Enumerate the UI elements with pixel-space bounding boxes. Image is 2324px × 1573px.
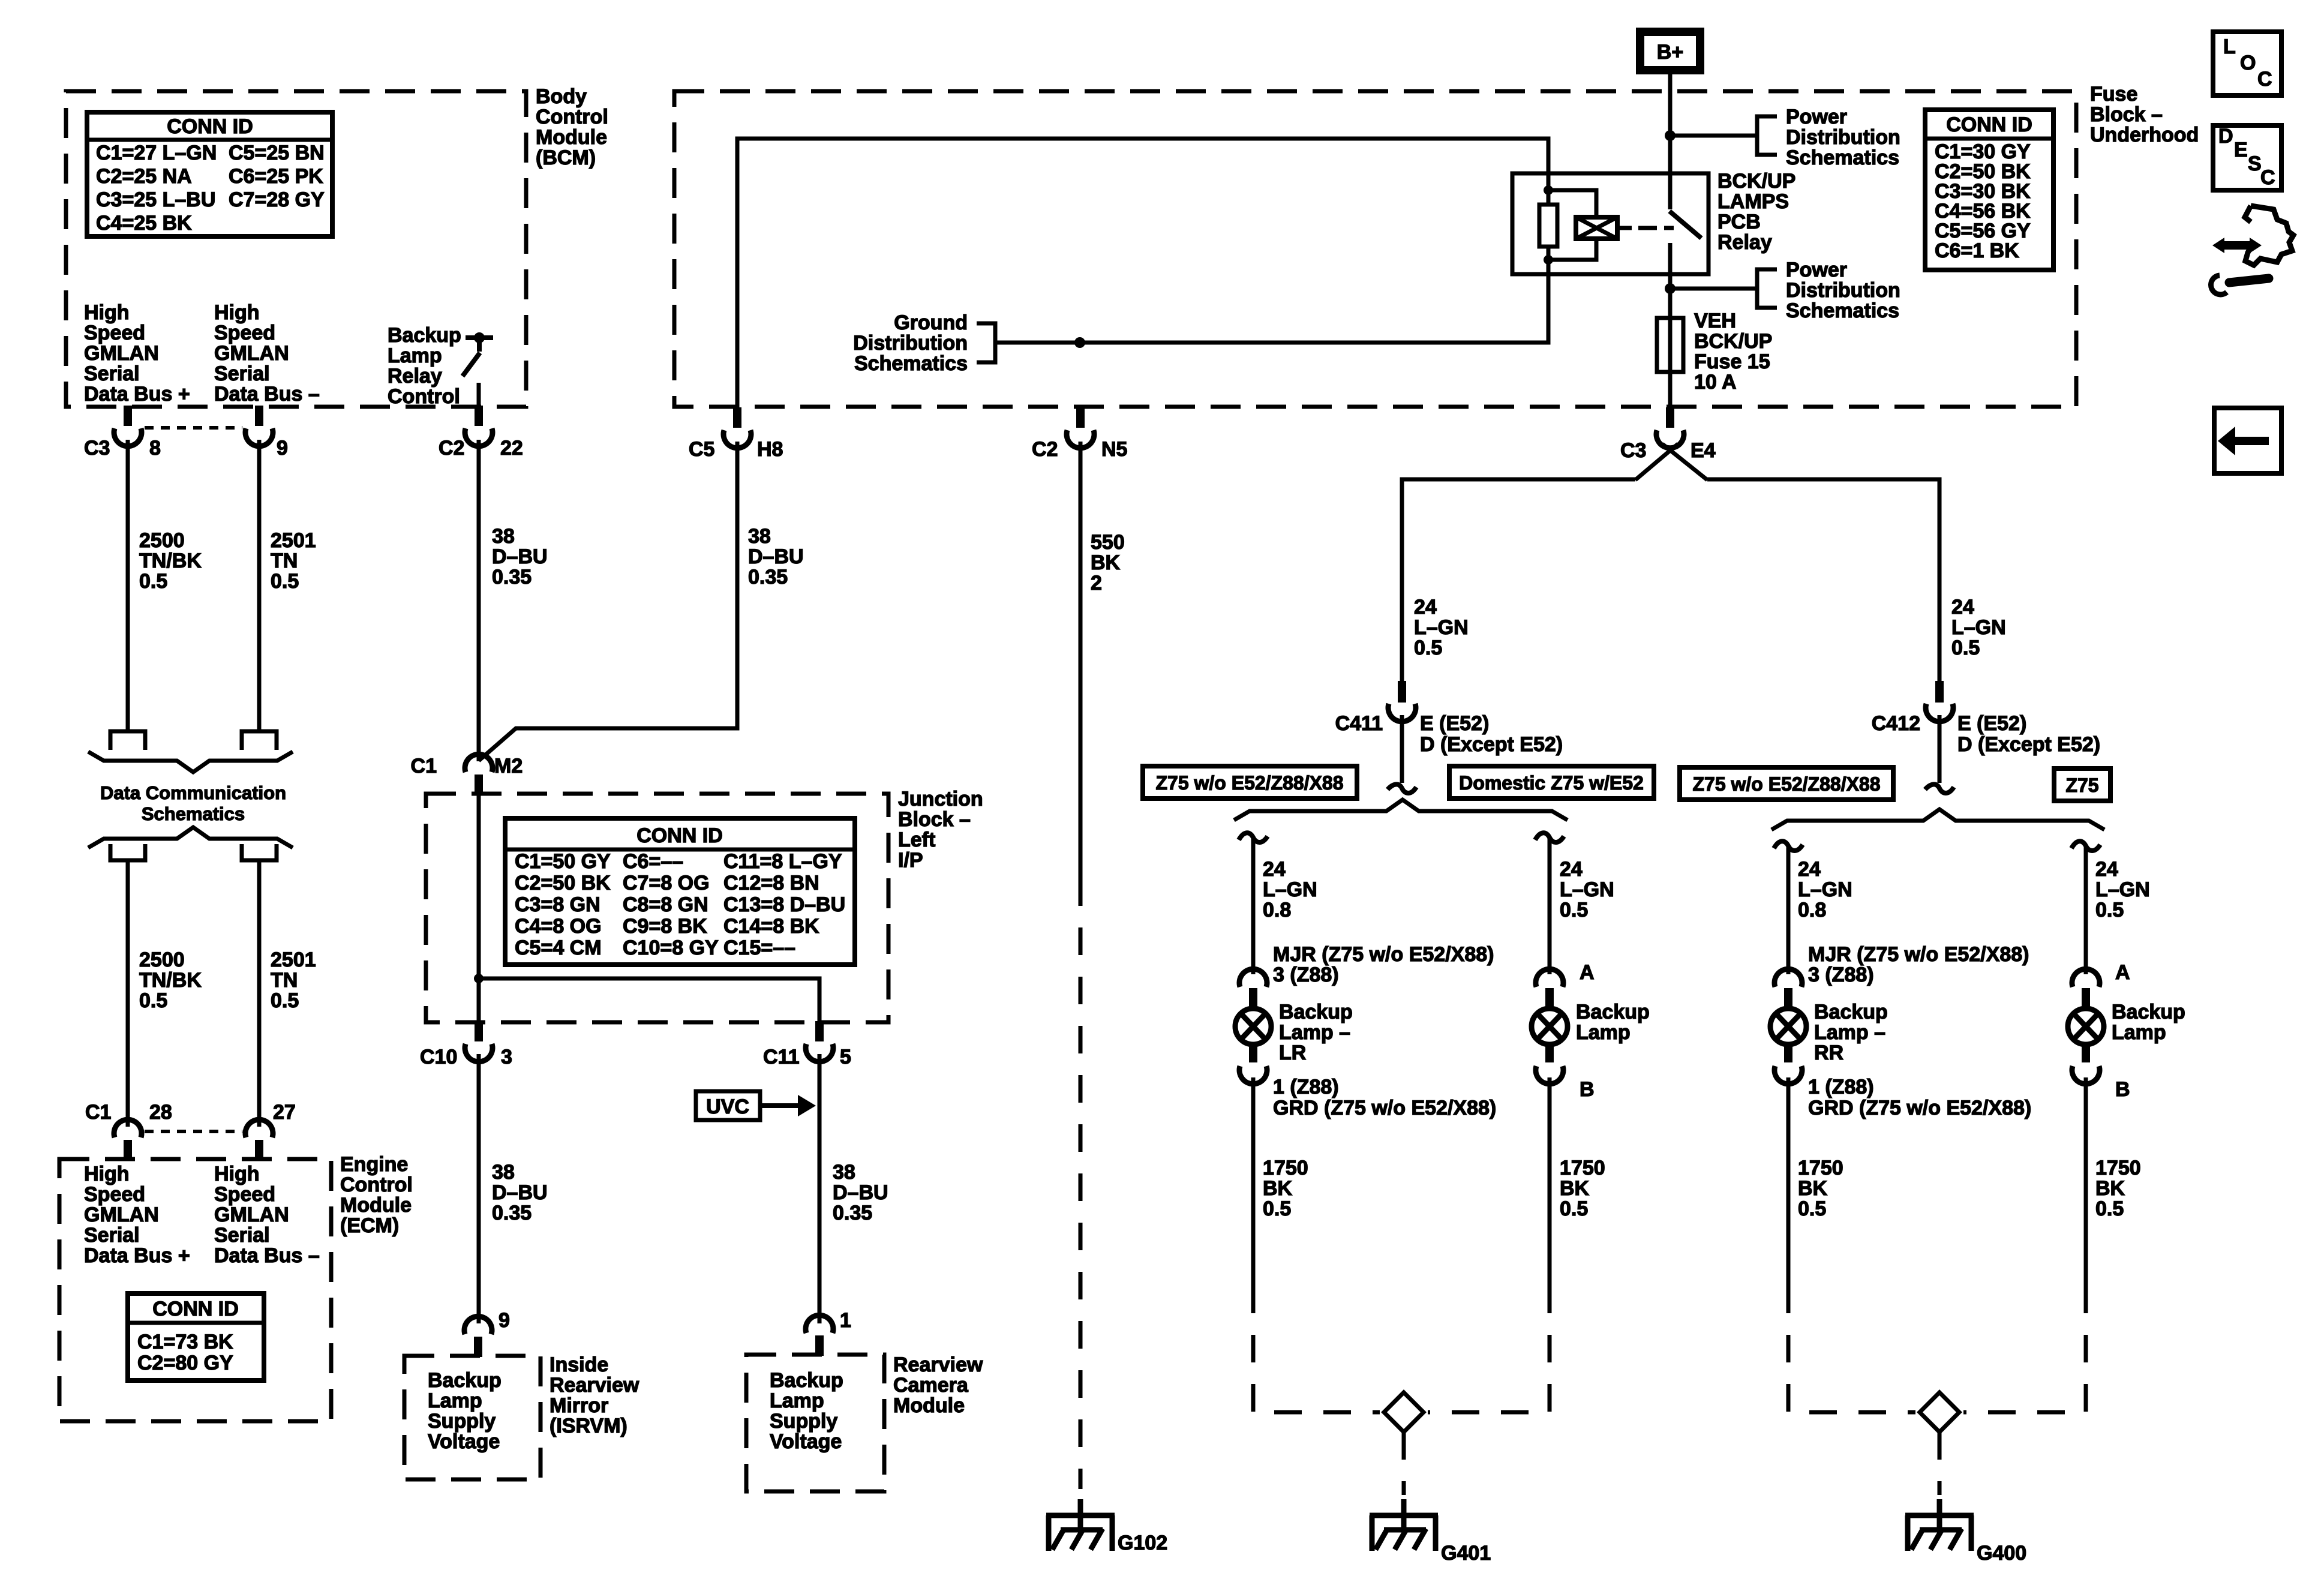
svg-text:Lamp: Lamp [770,1389,824,1412]
svg-text:MJR (Z75 w/o E52/X88): MJR (Z75 w/o E52/X88) [1273,943,1494,966]
svg-text:C11=8 L–GY: C11=8 L–GY [723,850,842,873]
svg-text:Rearview: Rearview [893,1353,983,1376]
svg-text:C7=8 OG: C7=8 OG [623,872,710,894]
svg-text:2501: 2501 [271,948,316,971]
svg-text:E4: E4 [1691,439,1716,462]
svg-text:0.5: 0.5 [139,989,167,1012]
svg-text:H8: H8 [757,438,783,461]
svg-text:C: C [2257,68,2272,91]
svg-text:L–GN: L–GN [1798,878,1852,901]
svg-text:Data Bus +: Data Bus + [84,383,190,406]
svg-text:GRD (Z75 w/o E52/X88): GRD (Z75 w/o E52/X88) [1273,1097,1496,1119]
svg-text:Power: Power [1786,259,1847,281]
svg-text:L–GN: L–GN [2095,878,2150,901]
svg-text:D (Except E52): D (Except E52) [1420,733,1563,756]
svg-text:G102: G102 [1118,1532,1167,1554]
svg-text:Ground: Ground [894,311,968,334]
svg-text:24: 24 [2095,858,2118,881]
svg-text:22: 22 [500,437,523,460]
svg-text:38: 38 [748,525,771,548]
svg-text:B: B [2115,1078,2130,1101]
svg-text:Module: Module [893,1394,965,1417]
svg-text:Lamp: Lamp [1576,1021,1631,1044]
svg-text:Schematics: Schematics [1786,299,1899,322]
svg-text:Block –: Block – [2090,103,2163,126]
svg-text:L–GN: L–GN [1560,878,1614,901]
svg-text:0.35: 0.35 [748,566,788,589]
svg-text:Backup: Backup [1576,1001,1650,1023]
svg-text:9: 9 [499,1309,510,1332]
svg-text:C9=8 BK: C9=8 BK [623,915,707,938]
svg-text:CONN ID: CONN ID [1946,113,2032,136]
svg-text:Distribution: Distribution [1786,279,1900,302]
svg-text:0.35: 0.35 [833,1202,872,1224]
svg-text:E (E52): E (E52) [1957,712,2026,735]
svg-text:C15=––: C15=–– [723,936,795,959]
svg-text:G400: G400 [1977,1542,2026,1565]
svg-text:0.5: 0.5 [271,989,299,1012]
svg-text:BCK/UP: BCK/UP [1718,170,1795,193]
svg-text:38: 38 [492,525,515,548]
svg-text:24: 24 [1798,858,1821,881]
svg-text:0.5: 0.5 [139,570,167,593]
svg-text:Lamp –: Lamp – [1279,1021,1350,1044]
svg-text:C11: C11 [763,1046,800,1068]
svg-text:Distribution: Distribution [1786,126,1900,149]
svg-text:0.5: 0.5 [1951,637,1980,659]
svg-text:S: S [2248,152,2262,175]
svg-text:UVC: UVC [706,1095,749,1118]
svg-text:C1=27 L–GN: C1=27 L–GN [96,142,217,164]
svg-text:0.5: 0.5 [271,570,299,593]
svg-text:PCB: PCB [1718,211,1761,233]
svg-text:C12=8 BN: C12=8 BN [723,872,819,894]
svg-text:C: C [2260,166,2275,189]
svg-text:Module: Module [340,1194,412,1217]
svg-text:L–GN: L–GN [1951,616,2006,639]
svg-text:BK: BK [1263,1177,1293,1200]
svg-text:0.5: 0.5 [1560,1197,1588,1220]
svg-text:Speed: Speed [214,1183,275,1206]
svg-text:BCK/UP: BCK/UP [1694,330,1772,353]
svg-text:8: 8 [149,437,161,460]
svg-text:D–BU: D–BU [833,1181,888,1204]
svg-text:L–GN: L–GN [1414,616,1469,639]
svg-text:VEH: VEH [1694,310,1736,332]
svg-text:C13=8 D–BU: C13=8 D–BU [723,893,845,916]
svg-text:3 (Z88): 3 (Z88) [1273,963,1339,986]
svg-text:C14=8 BK: C14=8 BK [723,915,819,938]
svg-text:0.35: 0.35 [492,566,532,589]
svg-text:0.5: 0.5 [1263,1197,1291,1220]
svg-text:10 A: 10 A [1694,371,1737,394]
svg-text:CONN ID: CONN ID [152,1298,239,1320]
svg-text:Lamp: Lamp [2112,1021,2166,1044]
svg-text:Supply: Supply [770,1410,837,1433]
svg-text:D–BU: D–BU [492,545,548,568]
svg-text:Data Bus +: Data Bus + [84,1244,190,1267]
svg-text:C3: C3 [1620,439,1646,462]
svg-text:Z75: Z75 [2065,775,2098,796]
svg-text:C10=8 GY: C10=8 GY [623,936,719,959]
svg-text:C10: C10 [420,1046,457,1068]
svg-text:Backup: Backup [2112,1001,2185,1023]
svg-text:Z75 w/o E52/Z88/X88: Z75 w/o E52/Z88/X88 [1692,773,1880,795]
svg-text:C6=––: C6=–– [623,850,683,873]
svg-text:5: 5 [840,1046,851,1068]
svg-text:C2=25 NA: C2=25 NA [96,165,192,188]
svg-text:Engine: Engine [340,1153,408,1176]
svg-text:C3=8 GN: C3=8 GN [515,893,600,916]
svg-text:Serial: Serial [84,1224,140,1247]
svg-text:C3=25 L–BU: C3=25 L–BU [96,188,215,211]
svg-text:B+: B+ [1657,41,1683,64]
svg-text:D: D [2218,125,2233,148]
svg-text:GMLAN: GMLAN [214,342,289,365]
svg-text:I/P: I/P [898,849,923,872]
svg-text:High: High [214,301,260,324]
svg-text:Backup: Backup [1279,1001,1353,1023]
svg-text:CONN ID: CONN ID [636,824,723,847]
svg-text:C6=25 PK: C6=25 PK [229,165,323,188]
svg-text:Block –: Block – [898,808,971,831]
svg-text:0.5: 0.5 [2095,1197,2124,1220]
svg-text:BK: BK [1798,1177,1828,1200]
svg-text:C2=50 BK: C2=50 BK [515,872,611,894]
svg-text:0.5: 0.5 [1560,899,1588,921]
svg-text:1750: 1750 [1263,1157,1308,1179]
svg-text:9: 9 [277,437,288,460]
svg-text:TN: TN [271,969,298,992]
svg-text:Backup: Backup [770,1369,843,1392]
svg-text:24: 24 [1560,858,1583,881]
svg-text:Voltage: Voltage [428,1430,500,1453]
svg-text:G401: G401 [1441,1542,1491,1565]
svg-text:M2: M2 [494,755,523,778]
svg-text:Fuse 15: Fuse 15 [1694,350,1770,373]
svg-text:(ECM): (ECM) [340,1214,399,1237]
svg-text:0.8: 0.8 [1798,899,1826,921]
svg-text:1 (Z88): 1 (Z88) [1273,1076,1339,1098]
svg-text:C3: C3 [84,437,110,460]
svg-text:C4=25 BK: C4=25 BK [96,212,192,235]
svg-text:CONN ID: CONN ID [167,115,253,138]
svg-text:GMLAN: GMLAN [84,1203,159,1226]
svg-text:C1=73 BK: C1=73 BK [137,1331,233,1353]
svg-text:Mirror: Mirror [550,1394,608,1417]
svg-text:High: High [214,1163,260,1185]
svg-text:2: 2 [1091,572,1102,595]
svg-text:Serial: Serial [214,362,270,385]
svg-text:Domestic Z75 w/E52: Domestic Z75 w/E52 [1459,772,1644,794]
svg-text:BK: BK [2095,1177,2125,1200]
svg-text:C5=4 CM: C5=4 CM [515,936,602,959]
svg-text:C411: C411 [1335,712,1383,735]
svg-text:Speed: Speed [84,322,145,344]
svg-text:MJR (Z75 w/o E52/X88): MJR (Z75 w/o E52/X88) [1808,943,2029,966]
svg-text:TN/BK: TN/BK [139,969,202,992]
svg-text:24: 24 [1414,596,1437,619]
svg-text:Backup: Backup [388,324,461,347]
svg-text:C8=8 GN: C8=8 GN [623,893,708,916]
svg-text:Body: Body [536,85,587,108]
svg-text:C1: C1 [411,755,437,778]
svg-text:Rearview: Rearview [550,1374,639,1397]
svg-text:0.35: 0.35 [492,1202,532,1224]
svg-text:RR: RR [1814,1041,1843,1064]
svg-text:Data Bus –: Data Bus – [214,383,320,406]
svg-text:24: 24 [1951,596,1974,619]
svg-text:Data Bus –: Data Bus – [214,1244,320,1267]
svg-text:1750: 1750 [1560,1157,1605,1179]
svg-text:Serial: Serial [214,1224,270,1247]
svg-text:2500: 2500 [139,529,185,552]
svg-text:BK: BK [1560,1177,1590,1200]
svg-text:E: E [2234,139,2248,161]
svg-text:Voltage: Voltage [770,1430,842,1453]
svg-text:Junction: Junction [898,788,983,810]
svg-text:C1: C1 [85,1101,111,1124]
svg-text:Fuse: Fuse [2090,83,2137,106]
svg-text:Speed: Speed [84,1183,145,1206]
svg-text:Schematics: Schematics [1786,146,1899,169]
svg-text:A: A [1580,961,1595,984]
svg-text:D (Except E52): D (Except E52) [1957,733,2100,756]
svg-text:D–BU: D–BU [492,1181,548,1204]
svg-text:GMLAN: GMLAN [84,342,159,365]
svg-text:Module: Module [536,126,607,149]
svg-text:GMLAN: GMLAN [214,1203,289,1226]
svg-text:C5=25 BN: C5=25 BN [229,142,325,164]
svg-text:L: L [2223,35,2236,58]
svg-text:Backup: Backup [428,1369,502,1392]
svg-text:Supply: Supply [428,1410,496,1433]
svg-text:C2: C2 [439,437,464,460]
svg-text:BK: BK [1091,551,1121,574]
svg-text:Speed: Speed [214,322,275,344]
svg-text:GRD (Z75 w/o E52/X88): GRD (Z75 w/o E52/X88) [1808,1097,2031,1119]
svg-text:0.5: 0.5 [2095,899,2124,921]
svg-text:3 (Z88): 3 (Z88) [1808,963,1874,986]
svg-text:C7=28 GY: C7=28 GY [229,188,325,211]
svg-text:1750: 1750 [2095,1157,2141,1179]
svg-text:Power: Power [1786,106,1847,128]
svg-text:C4=8 OG: C4=8 OG [515,915,602,938]
svg-text:Camera: Camera [893,1374,969,1397]
svg-text:38: 38 [492,1161,515,1184]
svg-text:N5: N5 [1101,438,1127,461]
svg-text:Underhood: Underhood [2090,124,2199,146]
svg-text:550: 550 [1091,531,1125,554]
svg-text:LAMPS: LAMPS [1718,190,1789,213]
svg-text:Control: Control [340,1173,413,1196]
svg-text:(ISRVM): (ISRVM) [550,1415,627,1437]
svg-text:Inside: Inside [550,1353,608,1376]
svg-text:Schematics: Schematics [854,352,968,375]
svg-text:(BCM): (BCM) [536,146,596,169]
svg-text:3: 3 [501,1046,512,1068]
svg-text:27: 27 [273,1101,296,1124]
svg-text:Z75 w/o E52/Z88/X88: Z75 w/o E52/Z88/X88 [1155,772,1343,794]
svg-text:Control: Control [388,385,460,408]
svg-text:Left: Left [898,828,935,851]
svg-text:D–BU: D–BU [748,545,804,568]
svg-text:High: High [84,301,130,324]
svg-text:38: 38 [833,1161,855,1184]
svg-text:2500: 2500 [139,948,185,971]
svg-text:TN: TN [271,550,298,572]
svg-text:C1=50 GY: C1=50 GY [515,850,611,873]
svg-text:Relay: Relay [1718,231,1772,254]
svg-text:Serial: Serial [84,362,140,385]
svg-text:1: 1 [840,1309,851,1332]
svg-text:B: B [1580,1078,1595,1101]
svg-text:24: 24 [1263,858,1286,881]
svg-text:Distribution: Distribution [853,332,968,355]
svg-text:LR: LR [1279,1041,1306,1064]
svg-text:0.5: 0.5 [1798,1197,1826,1220]
svg-text:TN/BK: TN/BK [139,550,202,572]
svg-text:Control: Control [536,106,608,128]
svg-text:28: 28 [149,1101,172,1124]
svg-text:2501: 2501 [271,529,316,552]
svg-text:1 (Z88): 1 (Z88) [1808,1076,1874,1098]
svg-text:Lamp –: Lamp – [1814,1021,1885,1044]
svg-text:Lamp: Lamp [428,1389,482,1412]
svg-text:L–GN: L–GN [1263,878,1317,901]
svg-text:0.8: 0.8 [1263,899,1291,921]
svg-text:C412: C412 [1872,712,1920,735]
svg-text:A: A [2115,961,2130,984]
svg-text:C2=80 GY: C2=80 GY [137,1352,233,1374]
svg-text:C2: C2 [1032,438,1058,461]
svg-text:Schematics: Schematics [142,803,245,824]
svg-text:Lamp: Lamp [388,344,442,367]
svg-text:1750: 1750 [1798,1157,1843,1179]
svg-text:Relay: Relay [388,365,442,388]
svg-text:E (E52): E (E52) [1420,712,1489,735]
svg-text:High: High [84,1163,130,1185]
svg-text:0.5: 0.5 [1414,637,1442,659]
svg-text:O: O [2240,52,2256,74]
svg-text:C6=1 BK: C6=1 BK [1935,239,2019,262]
svg-text:Backup: Backup [1814,1001,1888,1023]
svg-text:Data Communication: Data Communication [100,782,286,803]
svg-text:C5: C5 [689,438,714,461]
